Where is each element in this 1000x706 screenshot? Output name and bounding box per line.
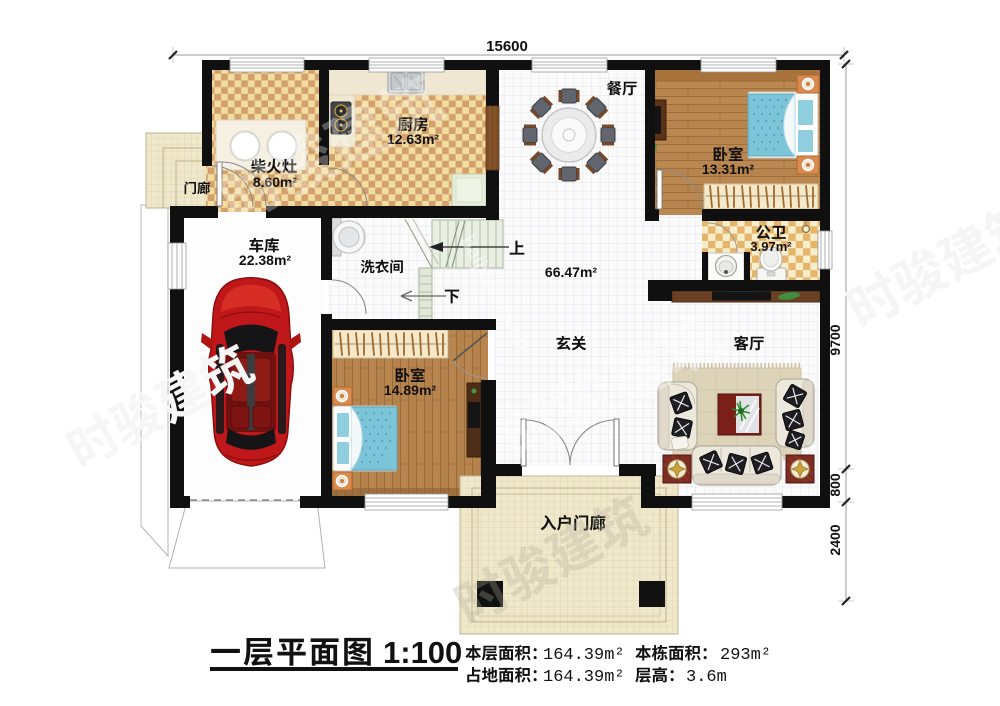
svg-text:15600: 15600 — [486, 38, 528, 55]
svg-text:3.6m: 3.6m — [686, 668, 727, 687]
svg-text:13.31m²: 13.31m² — [702, 161, 754, 177]
svg-text:14.89m²: 14.89m² — [384, 382, 436, 398]
svg-text:293m²: 293m² — [720, 646, 771, 665]
svg-text:164.39m²: 164.39m² — [543, 668, 625, 687]
svg-text:22.38m²: 22.38m² — [239, 252, 291, 268]
svg-text:800: 800 — [827, 473, 843, 497]
svg-text:164.39m²: 164.39m² — [543, 646, 625, 665]
svg-text:9700: 9700 — [827, 324, 843, 355]
svg-text:2400: 2400 — [827, 524, 843, 555]
svg-text:66.47m²: 66.47m² — [545, 264, 597, 280]
svg-text:1:100: 1:100 — [383, 635, 462, 670]
svg-text:3.97m²: 3.97m² — [750, 239, 792, 254]
